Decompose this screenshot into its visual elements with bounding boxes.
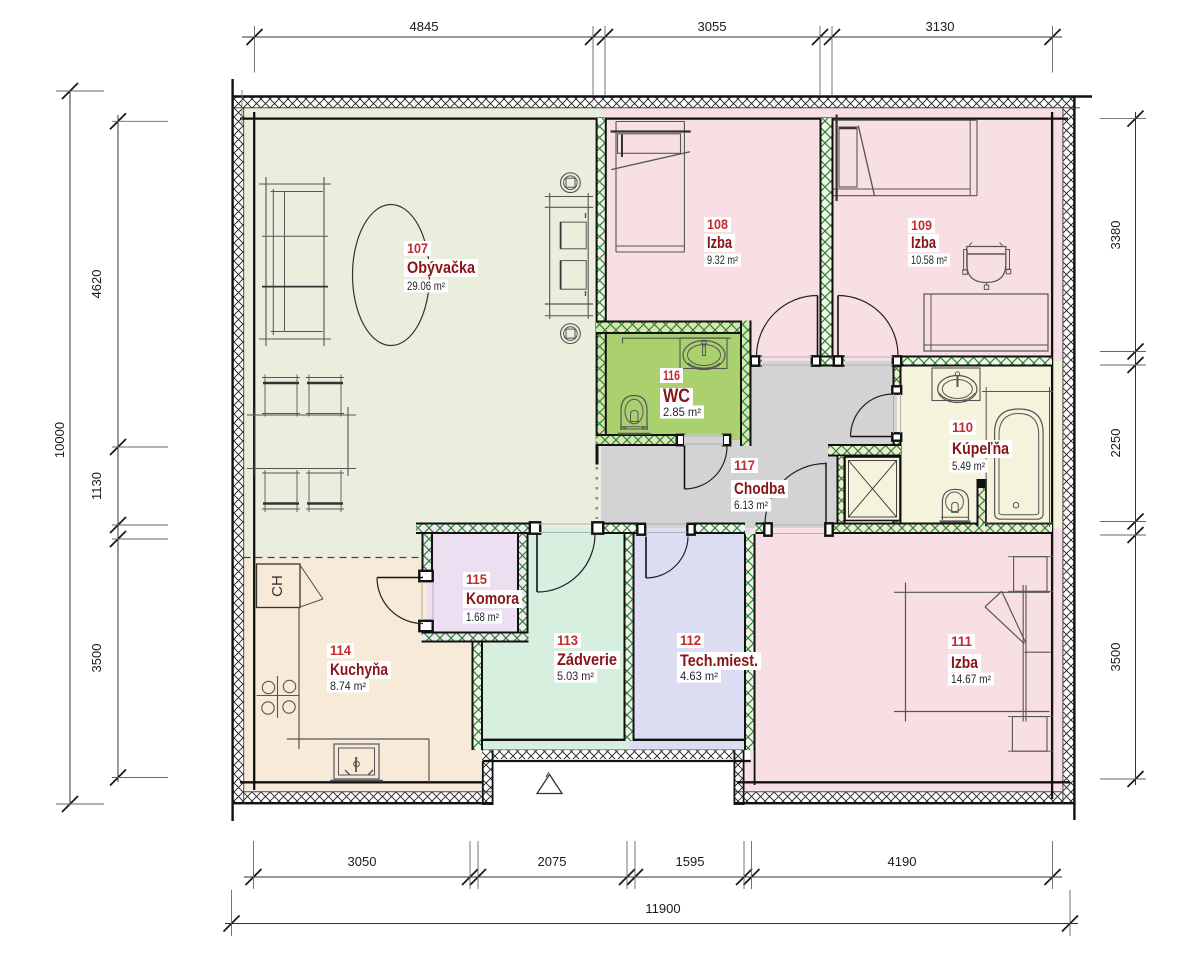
svg-text:4190: 4190 bbox=[888, 854, 917, 869]
svg-text:Kuchyňa: Kuchyňa bbox=[330, 660, 388, 679]
svg-text:3380: 3380 bbox=[1108, 221, 1123, 250]
svg-text:4845: 4845 bbox=[410, 19, 439, 34]
svg-text:14.67 m²: 14.67 m² bbox=[951, 674, 991, 686]
svg-text:5.03 m²: 5.03 m² bbox=[557, 671, 594, 683]
svg-text:9.32 m²: 9.32 m² bbox=[707, 255, 738, 267]
svg-text:Tech.miest.: Tech.miest. bbox=[680, 651, 758, 670]
svg-text:Izba: Izba bbox=[911, 233, 936, 252]
svg-text:2075: 2075 bbox=[538, 854, 567, 869]
svg-text:3500: 3500 bbox=[1108, 643, 1123, 672]
svg-text:Zádverie: Zádverie bbox=[557, 650, 617, 669]
svg-text:2.85 m²: 2.85 m² bbox=[663, 407, 701, 419]
svg-text:117: 117 bbox=[734, 457, 755, 473]
svg-text:Chodba: Chodba bbox=[734, 479, 785, 498]
svg-text:113: 113 bbox=[557, 632, 578, 648]
svg-text:11900: 11900 bbox=[645, 901, 680, 916]
svg-text:1595: 1595 bbox=[676, 854, 705, 869]
svg-text:WC: WC bbox=[663, 386, 690, 407]
svg-text:1130: 1130 bbox=[89, 472, 104, 500]
svg-text:111: 111 bbox=[951, 633, 972, 649]
svg-text:107: 107 bbox=[407, 240, 428, 256]
svg-text:10.58 m²: 10.58 m² bbox=[911, 255, 947, 267]
svg-text:4.63 m²: 4.63 m² bbox=[680, 671, 718, 683]
svg-text:29.06 m²: 29.06 m² bbox=[407, 281, 445, 293]
svg-text:3130: 3130 bbox=[926, 19, 955, 34]
svg-text:5.49 m²: 5.49 m² bbox=[952, 461, 985, 473]
svg-text:10000: 10000 bbox=[52, 422, 67, 458]
svg-text:3055: 3055 bbox=[698, 19, 727, 34]
svg-text:Izba: Izba bbox=[951, 653, 978, 672]
svg-text:112: 112 bbox=[680, 632, 701, 648]
svg-text:1.68 m²: 1.68 m² bbox=[466, 612, 499, 624]
svg-text:3050: 3050 bbox=[348, 854, 377, 869]
svg-text:4620: 4620 bbox=[89, 270, 104, 299]
svg-text:Obývačka: Obývačka bbox=[407, 258, 475, 277]
svg-text:Komora: Komora bbox=[466, 589, 519, 608]
svg-text:CH: CH bbox=[269, 575, 286, 597]
svg-text:3500: 3500 bbox=[89, 644, 104, 673]
svg-text:110: 110 bbox=[952, 419, 973, 435]
svg-text:115: 115 bbox=[466, 571, 487, 587]
svg-text:2250: 2250 bbox=[1108, 429, 1123, 458]
svg-text:8.74 m²: 8.74 m² bbox=[330, 681, 366, 693]
svg-text:Izba: Izba bbox=[707, 233, 732, 252]
svg-text:109: 109 bbox=[911, 217, 932, 233]
svg-text:Kúpeľňa: Kúpeľňa bbox=[952, 439, 1009, 458]
svg-text:108: 108 bbox=[707, 216, 728, 232]
svg-text:116: 116 bbox=[663, 367, 680, 383]
svg-text:6.13 m²: 6.13 m² bbox=[734, 500, 768, 512]
svg-text:114: 114 bbox=[330, 642, 351, 658]
